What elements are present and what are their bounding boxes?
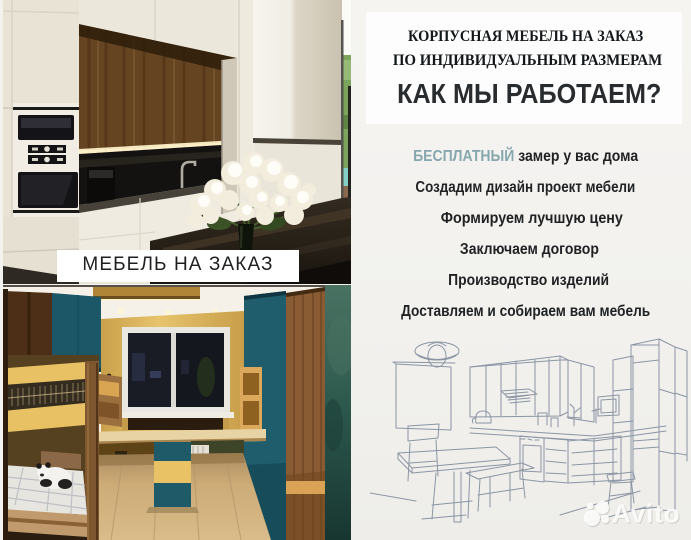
svg-text:Avito: Avito — [612, 499, 681, 529]
